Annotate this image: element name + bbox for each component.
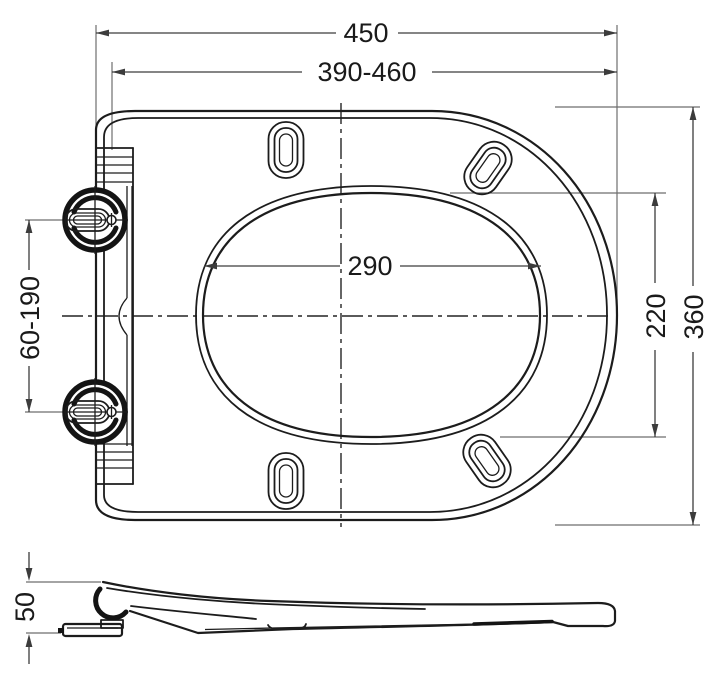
arrowhead-bottom [26, 634, 33, 647]
hinge-knuckle [96, 589, 126, 618]
bumper-slot-top-left [269, 122, 304, 178]
arrowhead-bottom [26, 399, 33, 412]
extension-lines [25, 25, 700, 633]
arrowhead-left [112, 69, 125, 76]
mounting-plate [63, 624, 122, 636]
slot-inner [473, 151, 502, 185]
slot-inner [280, 465, 293, 497]
dimension-profile-height: 50 [10, 552, 40, 664]
lid-inner-outline [104, 118, 607, 512]
bumper-slot-top-right [458, 135, 519, 201]
dim-adjustable-length-label: 390-460 [317, 57, 416, 87]
dimension-opening-length: 220 [641, 193, 671, 437]
arrowhead-left [96, 30, 109, 37]
arrowhead-right [604, 69, 617, 76]
slot-mid [465, 436, 509, 485]
dimension-overall-length: 450 [96, 18, 617, 48]
arrowhead-right [604, 30, 617, 37]
slot-outer [457, 428, 518, 494]
arrowhead-bottom [652, 424, 659, 437]
arrowhead-bottom [690, 512, 697, 525]
slot-inner [472, 444, 501, 478]
dim-profile-height-label: 50 [10, 592, 40, 622]
dim-overall-length-label: 450 [343, 18, 388, 48]
toilet-seat-dimension-drawing: 450 390-460 290 360 220 60-190 50 [0, 0, 720, 682]
dimension-adjustable-length: 390-460 [112, 57, 617, 87]
dimension-opening-width: 290 [204, 251, 541, 281]
dim-hinge-spacing-label: 60-190 [15, 276, 45, 360]
bumper-slot-bottom-left [269, 453, 304, 509]
hinge-bolt-bottom [64, 378, 128, 446]
arrowhead-top [652, 193, 659, 206]
slot-mid [466, 143, 510, 192]
arrowhead-top [26, 220, 33, 233]
dimension-overall-width: 360 [679, 107, 709, 525]
slot-outer [458, 135, 519, 201]
profile-top-outline [103, 582, 615, 626]
mounting-plate-nub [58, 628, 64, 633]
dim-opening-width-label: 290 [347, 251, 392, 281]
dim-opening-length-label: 220 [641, 293, 671, 338]
dim-overall-width-label: 360 [679, 294, 709, 339]
slot-inner [280, 134, 293, 166]
seat-side-view [58, 582, 615, 636]
arrowhead-top [690, 107, 697, 120]
arrowhead-top [26, 568, 33, 581]
dimension-hinge-spacing: 60-190 [15, 220, 45, 412]
seat-opening-edge [203, 193, 540, 437]
rubber-bumper-bar [474, 622, 552, 625]
centerlines [62, 103, 613, 527]
bumper-slot-bottom-right [457, 428, 518, 494]
hinge-bolt-top [64, 186, 128, 254]
technical-drawing-page: 450 390-460 290 360 220 60-190 50 [0, 0, 720, 682]
rubber-bumper [268, 624, 306, 629]
